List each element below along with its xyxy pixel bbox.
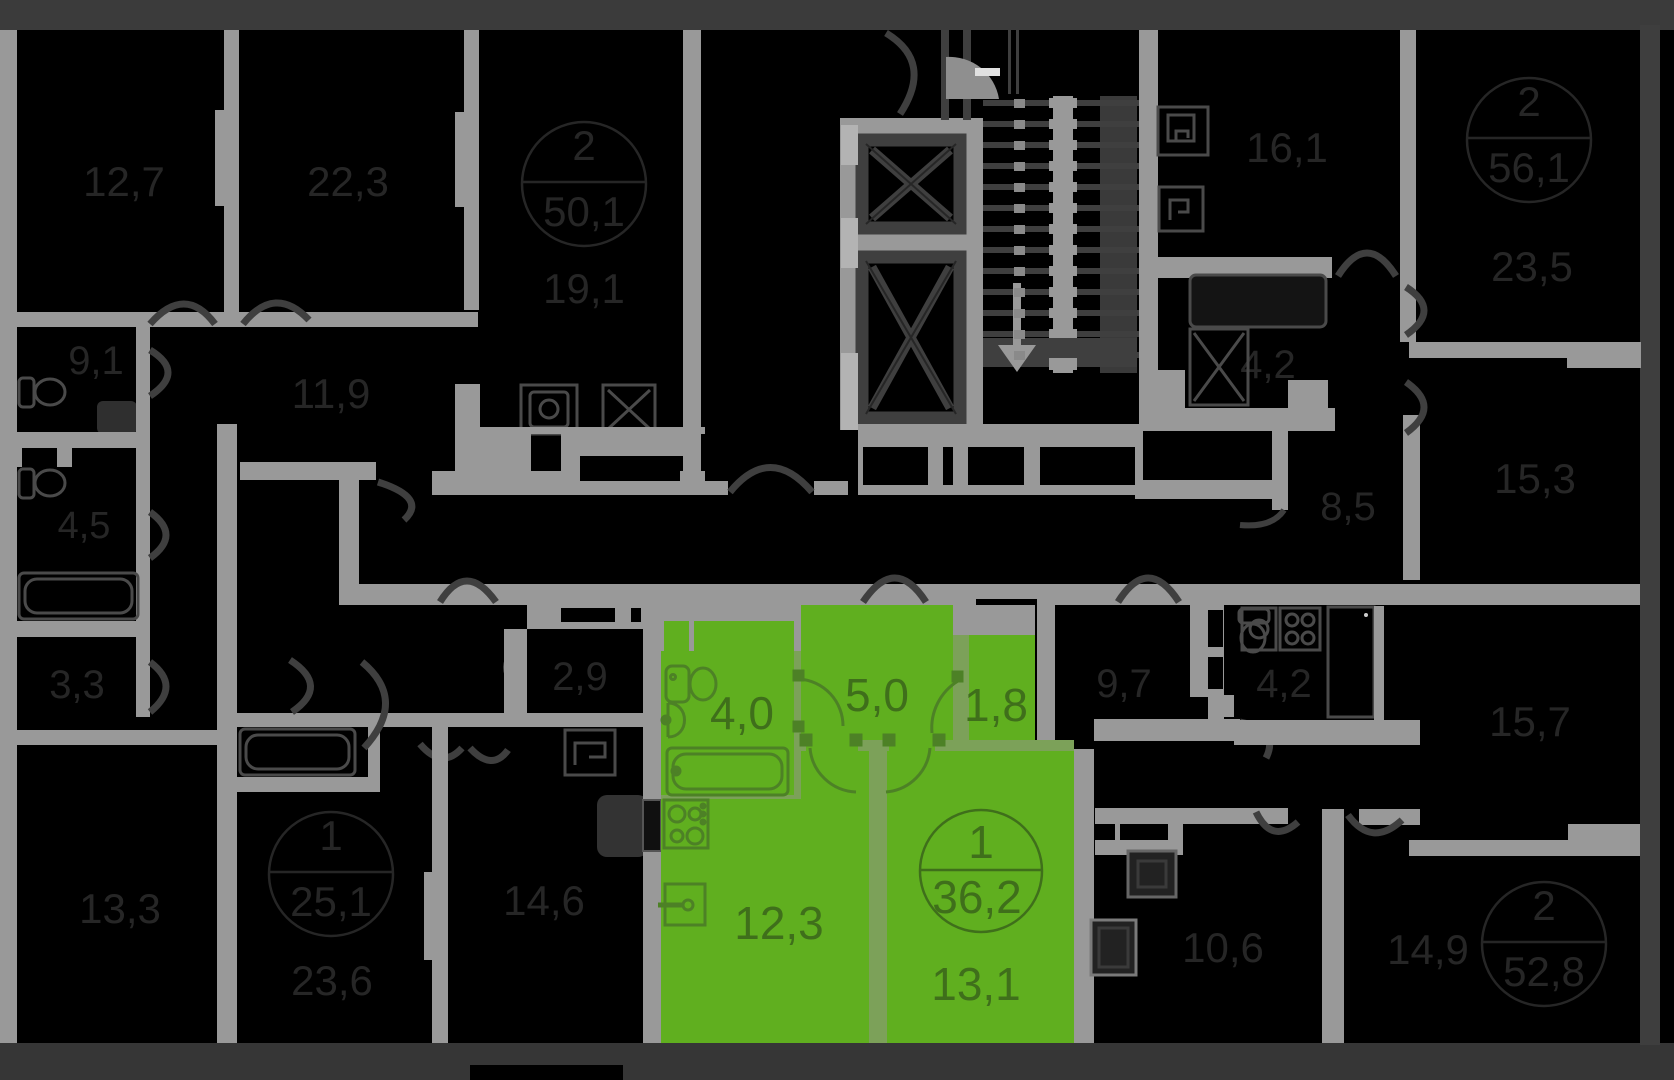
svg-text:4,2: 4,2 xyxy=(1256,662,1312,706)
svg-text:2: 2 xyxy=(572,122,595,169)
svg-text:13,3: 13,3 xyxy=(79,885,161,932)
svg-text:2: 2 xyxy=(1532,882,1555,929)
svg-text:9,7: 9,7 xyxy=(1096,662,1152,706)
svg-text:15,3: 15,3 xyxy=(1494,455,1576,502)
svg-text:23,6: 23,6 xyxy=(291,957,373,1004)
svg-text:25,1: 25,1 xyxy=(290,878,372,925)
svg-text:2: 2 xyxy=(1517,78,1540,125)
svg-text:14,6: 14,6 xyxy=(503,877,585,924)
svg-text:3,3: 3,3 xyxy=(49,663,105,707)
svg-text:16,1: 16,1 xyxy=(1246,124,1328,171)
svg-text:56,1: 56,1 xyxy=(1488,144,1570,191)
svg-text:4,0: 4,0 xyxy=(710,687,774,739)
svg-text:50,1: 50,1 xyxy=(543,188,625,235)
svg-text:36,2: 36,2 xyxy=(932,871,1022,923)
svg-text:14,9: 14,9 xyxy=(1387,926,1469,973)
svg-text:9,1: 9,1 xyxy=(68,339,124,383)
svg-text:52,8: 52,8 xyxy=(1503,948,1585,995)
svg-text:19,1: 19,1 xyxy=(543,265,625,312)
svg-text:5,0: 5,0 xyxy=(845,669,909,721)
svg-text:2,9: 2,9 xyxy=(552,655,608,699)
svg-text:8,5: 8,5 xyxy=(1320,485,1376,529)
svg-text:10,6: 10,6 xyxy=(1182,924,1264,971)
svg-text:1,8: 1,8 xyxy=(964,679,1028,731)
svg-text:22,3: 22,3 xyxy=(307,158,389,205)
svg-text:12,3: 12,3 xyxy=(734,897,824,949)
svg-text:23,5: 23,5 xyxy=(1491,243,1573,290)
svg-text:11,9: 11,9 xyxy=(292,370,371,417)
svg-text:4,5: 4,5 xyxy=(58,505,111,547)
svg-text:1: 1 xyxy=(968,816,994,868)
svg-text:15,7: 15,7 xyxy=(1489,698,1571,745)
svg-text:1: 1 xyxy=(319,812,342,859)
svg-text:13,1: 13,1 xyxy=(931,958,1021,1010)
svg-text:12,7: 12,7 xyxy=(83,158,165,205)
